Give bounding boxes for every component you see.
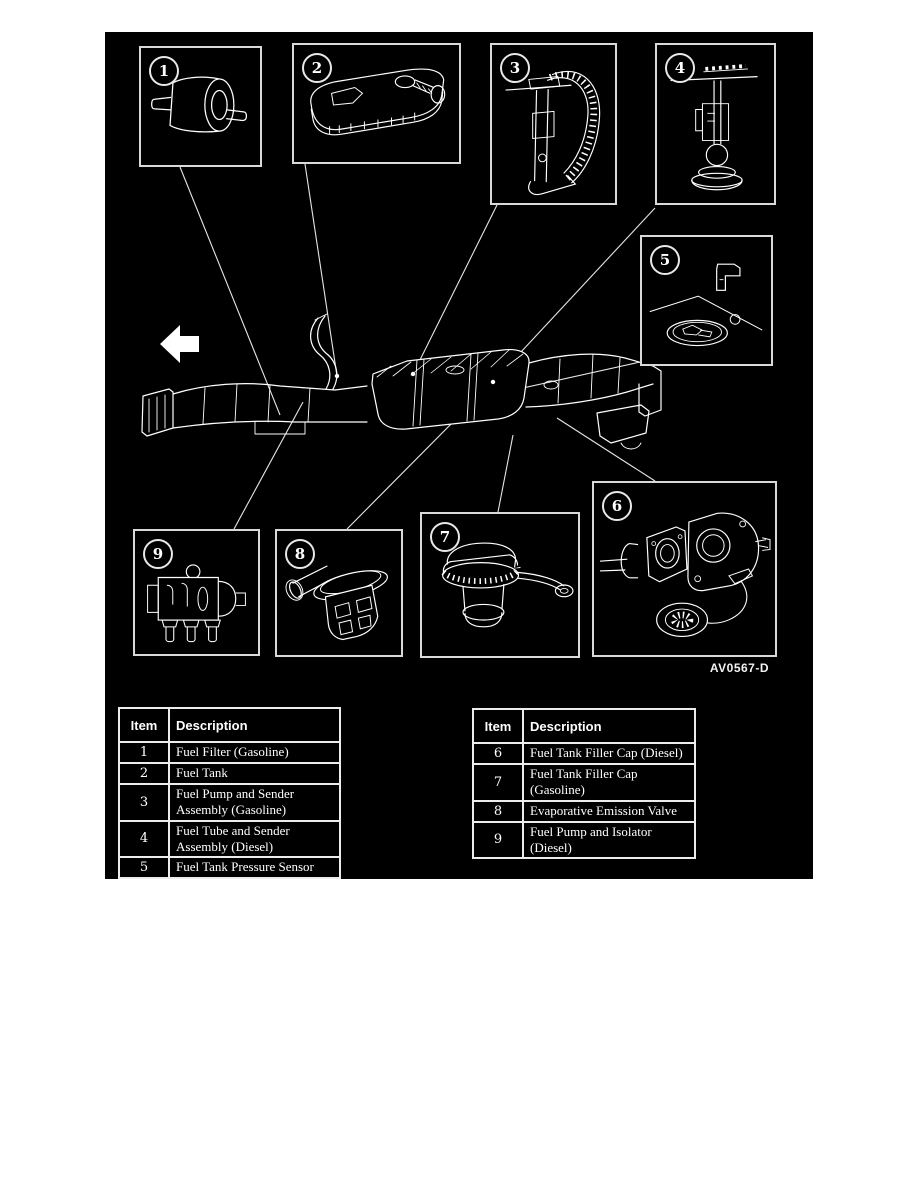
description-header: Description <box>523 709 695 743</box>
table-row: 2 Fuel Tank <box>119 763 340 784</box>
table-row: 3 Fuel Pump and Sender Assembly (Gasolin… <box>119 784 340 821</box>
callout-box-5: 5 <box>640 235 773 366</box>
callout-box-7: 7 <box>420 512 580 658</box>
callout-box-6: 6 <box>592 481 777 657</box>
table-row: 6 Fuel Tank Filler Cap (Diesel) <box>473 743 695 764</box>
item-cell: 2 <box>119 763 169 784</box>
item-cell: 9 <box>473 822 523 859</box>
callout-box-4: 4 <box>655 43 776 205</box>
chassis-lines <box>142 314 661 449</box>
description-cell: Fuel Tank <box>169 763 340 784</box>
callout-number-1: 1 <box>149 56 179 86</box>
table-row: 9 Fuel Pump and Isolator (Diesel) <box>473 822 695 859</box>
item-cell: 7 <box>473 764 523 801</box>
description-cell: Fuel Tank Pressure Sensor <box>169 857 340 878</box>
callout-number-9: 9 <box>143 539 173 569</box>
item-cell: 5 <box>119 857 169 878</box>
front-direction-arrow-icon <box>160 325 199 363</box>
description-cell: Fuel Pump and Sender Assembly (Gasoline) <box>169 784 340 821</box>
callout-number-4: 4 <box>665 53 695 83</box>
item-cell: 6 <box>473 743 523 764</box>
description-header: Description <box>169 708 340 742</box>
leader-lines <box>180 164 655 529</box>
callout-box-8: 8 <box>275 529 403 657</box>
table-row: 5 Fuel Tank Pressure Sensor <box>119 857 340 878</box>
parts-table-left: Item Description 1 Fuel Filter (Gasoline… <box>118 707 341 879</box>
table-row: 4 Fuel Tube and Sender Assembly (Diesel) <box>119 821 340 858</box>
callout-number-7: 7 <box>430 522 460 552</box>
description-cell: Fuel Pump and Isolator (Diesel) <box>523 822 695 859</box>
table-row: 7 Fuel Tank Filler Cap (Gasoline) <box>473 764 695 801</box>
figure-code: AV0567-D <box>710 661 769 675</box>
table-header-row: Item Description <box>473 709 695 743</box>
table-row: 1 Fuel Filter (Gasoline) <box>119 742 340 763</box>
callout-number-3: 3 <box>500 53 530 83</box>
item-cell: 8 <box>473 801 523 822</box>
description-cell: Fuel Tube and Sender Assembly (Diesel) <box>169 821 340 858</box>
item-cell: 1 <box>119 742 169 763</box>
callout-box-9: 9 <box>133 529 260 656</box>
callout-number-2: 2 <box>302 53 332 83</box>
table-header-row: Item Description <box>119 708 340 742</box>
callout-number-5: 5 <box>650 245 680 275</box>
callout-box-1: 1 <box>139 46 262 167</box>
item-header: Item <box>473 709 523 743</box>
description-cell: Fuel Tank Filler Cap (Diesel) <box>523 743 695 764</box>
description-cell: Fuel Filter (Gasoline) <box>169 742 340 763</box>
callout-number-8: 8 <box>285 539 315 569</box>
item-header: Item <box>119 708 169 742</box>
parts-table-right: Item Description 6 Fuel Tank Filler Cap … <box>472 708 696 859</box>
callout-box-2: 2 <box>292 43 461 164</box>
table-row: 8 Evaporative Emission Valve <box>473 801 695 822</box>
item-cell: 3 <box>119 784 169 821</box>
manual-page: { "page": { "background": "#ffffff", "ca… <box>0 0 918 1188</box>
description-cell: Evaporative Emission Valve <box>523 801 695 822</box>
callout-number-6: 6 <box>602 491 632 521</box>
figure-canvas: 1 2 <box>105 32 813 879</box>
description-cell: Fuel Tank Filler Cap (Gasoline) <box>523 764 695 801</box>
item-cell: 4 <box>119 821 169 858</box>
callout-box-3: 3 <box>490 43 617 205</box>
